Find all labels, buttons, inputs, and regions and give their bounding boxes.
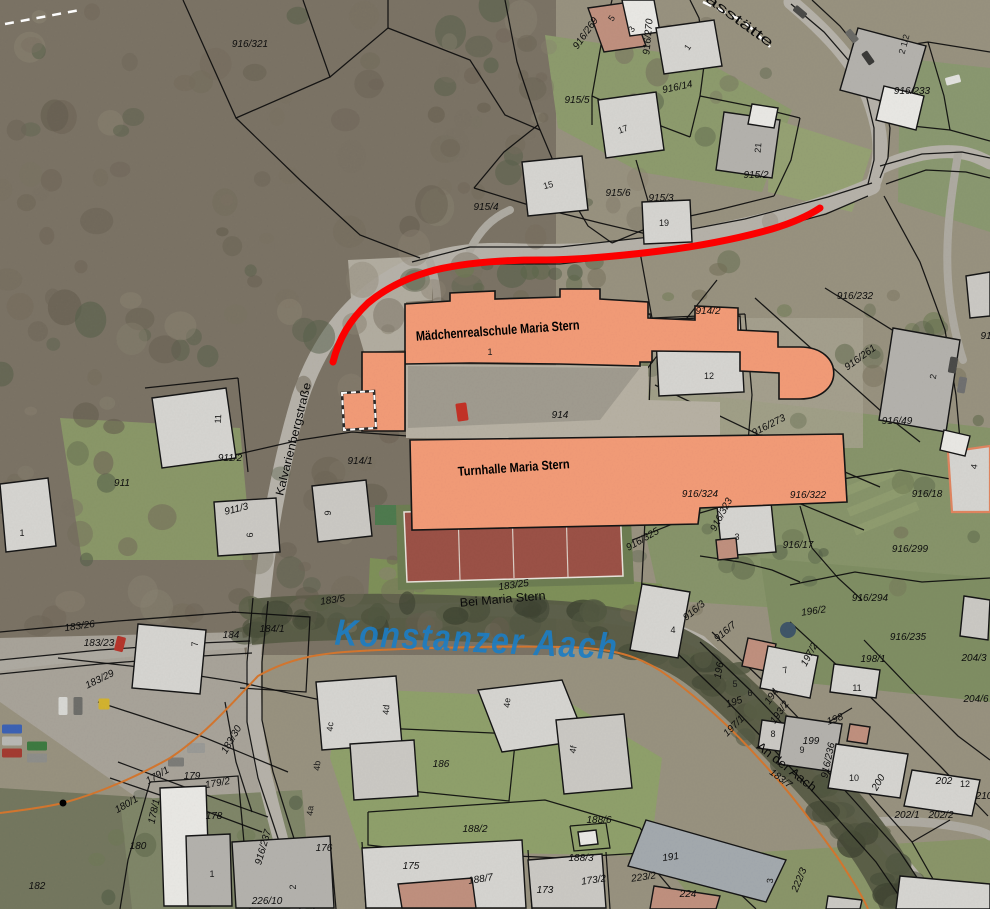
map-viewport[interactable]: Mädchenrealschule Maria Stern Turnhalle … bbox=[0, 0, 990, 909]
photo-grain-overlay bbox=[0, 0, 990, 909]
aerial-map-canvas[interactable]: Mädchenrealschule Maria Stern Turnhalle … bbox=[0, 0, 990, 909]
